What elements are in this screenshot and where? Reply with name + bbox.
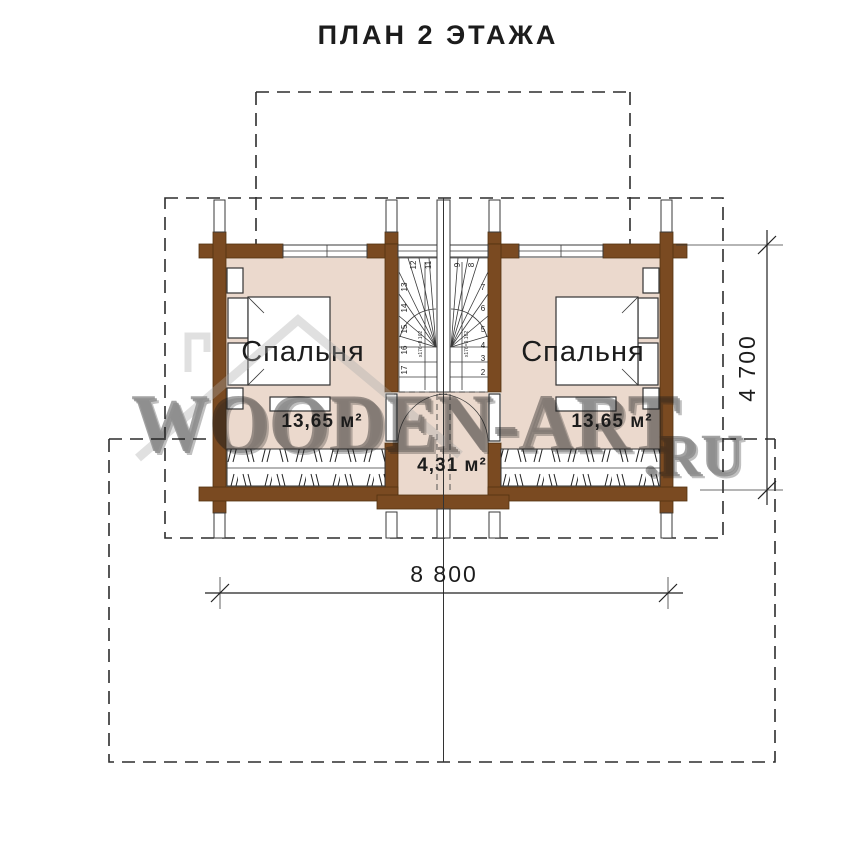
floor-plan-page: 12 11 13 14 15 16 17 x176=9.162 9 8 7 6 … bbox=[0, 0, 850, 850]
watermark-text: WOODEN-ART bbox=[133, 379, 681, 470]
stair-step-number: 15 bbox=[400, 324, 409, 333]
stair-step-number: 4 bbox=[481, 341, 486, 350]
stair-step-number: 8 bbox=[467, 262, 476, 267]
nightstand bbox=[228, 298, 248, 338]
stair-step-number: 16 bbox=[400, 345, 409, 354]
stair-step-number: 12 bbox=[409, 260, 418, 269]
window bbox=[283, 245, 367, 257]
stair-step-number: 14 bbox=[400, 303, 409, 312]
stair-step-number: 11 bbox=[424, 260, 433, 269]
stair-step-number: 6 bbox=[481, 304, 486, 313]
floor-plan-canvas: 12 11 13 14 15 16 17 x176=9.162 9 8 7 6 … bbox=[0, 0, 850, 850]
stair-step-number: 13 bbox=[400, 282, 409, 291]
stair-step-number: 5 bbox=[481, 325, 486, 334]
watermark-chimney bbox=[188, 336, 207, 372]
dimension-width-value: 8 800 bbox=[410, 561, 478, 587]
stair-note: x176=9.162 bbox=[464, 331, 470, 357]
wardrobe bbox=[227, 268, 243, 293]
stair-step-number: 7 bbox=[481, 283, 486, 292]
wardrobe bbox=[643, 268, 659, 293]
window bbox=[398, 245, 437, 257]
stair-step-number: 9 bbox=[453, 262, 462, 267]
window bbox=[519, 245, 603, 257]
window bbox=[450, 245, 488, 257]
watermark-suffix: .RU bbox=[645, 424, 745, 489]
room-label-right-bedroom: Спальня bbox=[521, 336, 645, 368]
stair-step-number: 3 bbox=[481, 354, 486, 363]
stair-step-number: 2 bbox=[481, 368, 486, 377]
stair-step-number: 17 bbox=[400, 365, 409, 374]
dimension-depth-value: 4 700 bbox=[734, 334, 760, 402]
stair-note: x176=9.162 bbox=[418, 331, 424, 357]
page-title: ПЛАН 2 ЭТАЖА bbox=[318, 20, 559, 50]
nightstand bbox=[638, 298, 658, 338]
